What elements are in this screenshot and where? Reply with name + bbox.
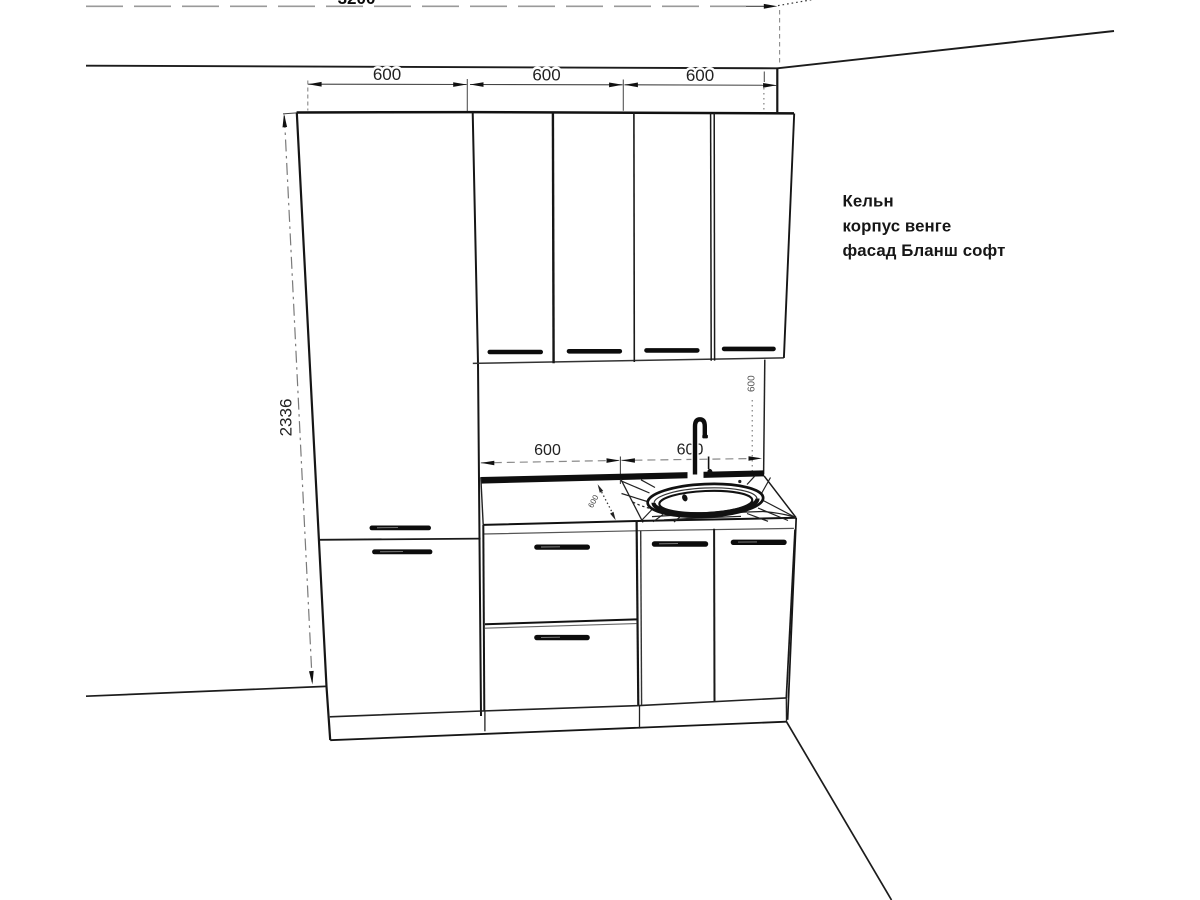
- svg-text:фасад Бланш софт: фасад Бланш софт: [843, 241, 1006, 260]
- svg-text:600: 600: [532, 66, 560, 85]
- svg-text:3200: 3200: [338, 0, 376, 8]
- svg-text:600: 600: [747, 375, 758, 392]
- svg-text:600: 600: [677, 441, 704, 458]
- svg-text:600: 600: [373, 65, 401, 84]
- svg-text:600: 600: [534, 442, 561, 459]
- svg-text:2336: 2336: [277, 399, 296, 437]
- svg-text:корпус венге: корпус венге: [843, 216, 952, 235]
- svg-text:600: 600: [686, 66, 714, 85]
- svg-text:Кельн: Кельн: [843, 192, 894, 211]
